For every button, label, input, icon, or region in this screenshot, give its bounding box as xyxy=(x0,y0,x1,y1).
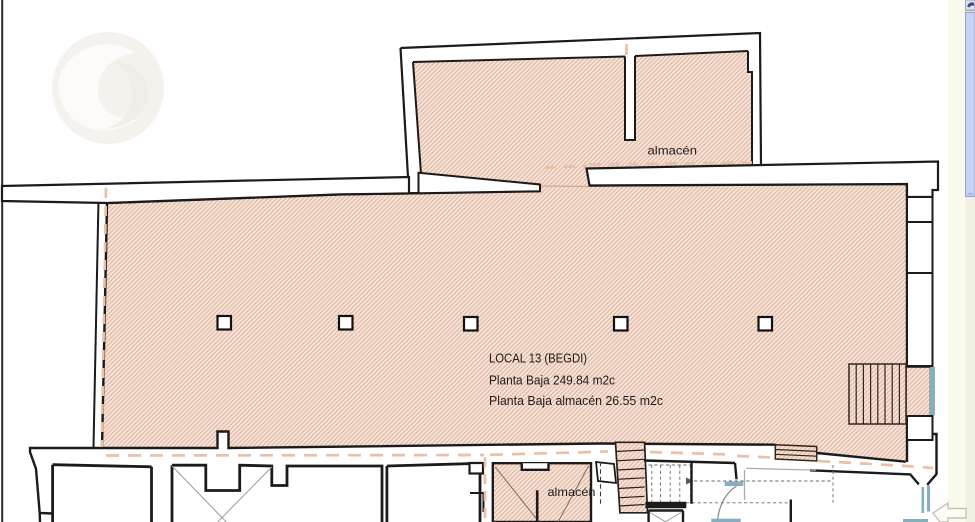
svg-text:almacén: almacén xyxy=(548,485,596,499)
svg-text:Planta Baja almacén 26.55 m2c: Planta Baja almacén 26.55 m2c xyxy=(489,393,663,408)
svg-text:Planta Baja 249.84 m2c: Planta Baja 249.84 m2c xyxy=(489,373,615,388)
svg-text:almacén: almacén xyxy=(648,144,698,158)
svg-text:LOCAL 13 (BEGDI): LOCAL 13 (BEGDI) xyxy=(489,351,587,366)
